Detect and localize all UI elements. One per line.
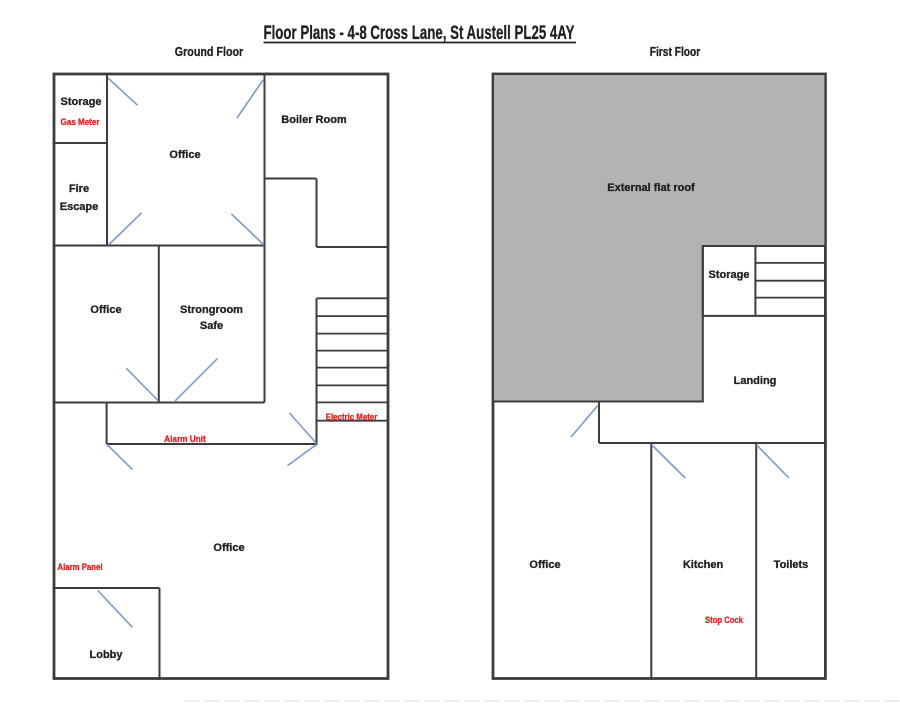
svg-text:Alarm Panel: Alarm Panel <box>58 562 103 572</box>
svg-text:Office: Office <box>90 304 121 316</box>
svg-text:First Floor: First Floor <box>650 44 701 59</box>
svg-text:Landing: Landing <box>734 375 777 387</box>
svg-text:Kitchen: Kitchen <box>683 559 724 571</box>
svg-text:Lobby: Lobby <box>90 649 124 661</box>
svg-text:Office: Office <box>169 149 200 161</box>
svg-text:Escape: Escape <box>60 201 99 213</box>
svg-text:Storage: Storage <box>709 269 750 281</box>
svg-text:Office: Office <box>529 559 560 571</box>
svg-text:Office: Office <box>213 542 244 554</box>
svg-text:Strongroom: Strongroom <box>180 304 243 316</box>
svg-text:Stop Cock: Stop Cock <box>705 615 744 625</box>
svg-text:Floor Plans - 4-8 Cross Lane,: Floor Plans - 4-8 Cross Lane, St Austell… <box>264 22 575 44</box>
svg-text:Alarm Unit: Alarm Unit <box>164 434 206 444</box>
svg-text:Safe: Safe <box>200 320 223 332</box>
svg-text:Toilets: Toilets <box>774 559 809 571</box>
svg-text:Storage: Storage <box>61 96 102 108</box>
svg-text:Fire: Fire <box>69 183 89 195</box>
svg-text:External flat roof: External flat roof <box>607 182 695 194</box>
svg-text:Electric Meter: Electric Meter <box>326 412 378 422</box>
svg-text:Boiler Room: Boiler Room <box>281 114 347 126</box>
svg-text:Ground Floor: Ground Floor <box>175 44 243 59</box>
svg-text:Gas Meter: Gas Meter <box>61 117 100 127</box>
